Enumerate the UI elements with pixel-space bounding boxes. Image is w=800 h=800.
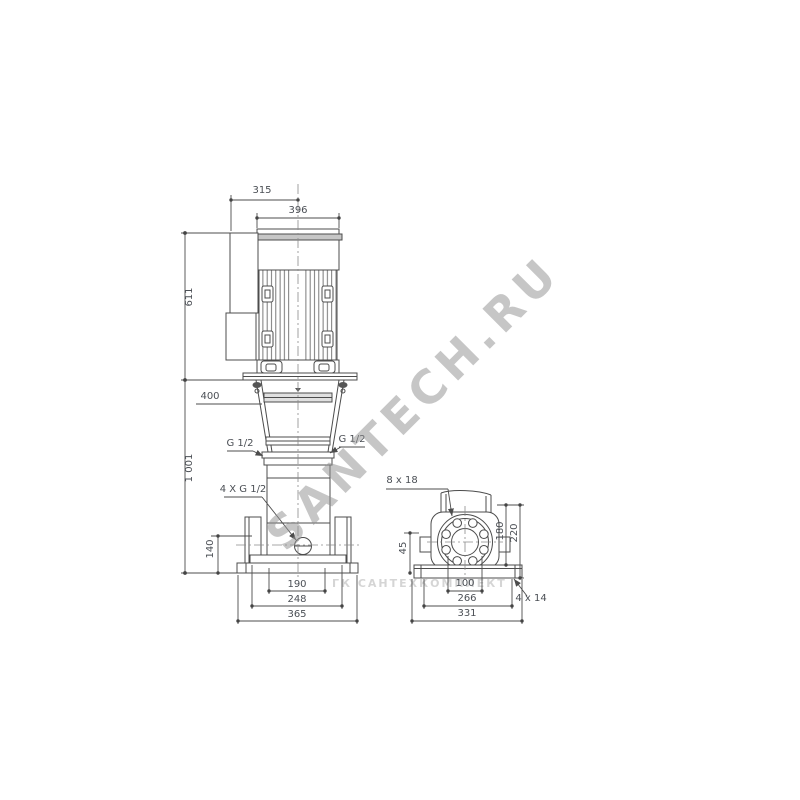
dim-base-holes: 4 x 14 bbox=[515, 594, 546, 604]
dim-base-inner-width: 190 bbox=[287, 580, 306, 590]
motor-flange bbox=[243, 373, 357, 380]
port-label-right: G 1/2 bbox=[338, 435, 365, 445]
dim-flange-top-height: 220 bbox=[510, 523, 520, 542]
side-base-plate bbox=[414, 565, 522, 578]
dim-hole-span: 100 bbox=[455, 579, 474, 589]
chamber-stack bbox=[267, 465, 330, 555]
pump-base bbox=[237, 555, 358, 573]
coupling-lantern bbox=[253, 380, 348, 452]
dim-motor-width: 396 bbox=[288, 206, 307, 216]
dim-base-width: 365 bbox=[287, 610, 306, 620]
port-label-left: G 1/2 bbox=[226, 439, 253, 449]
dim-base-mid-width: 248 bbox=[287, 595, 306, 605]
side-port-left bbox=[420, 537, 431, 552]
dim-removal-clearance: 400 bbox=[200, 392, 219, 402]
pump-dimensional-drawing: ГК САНТЕХКОМПЛЕКТ bbox=[0, 0, 800, 800]
dim-flange-holes: 8 x 18 bbox=[386, 476, 417, 486]
dim-motor-height: 611 bbox=[185, 287, 195, 306]
terminal-box bbox=[226, 233, 258, 360]
dim-base-edge-height: 45 bbox=[399, 542, 409, 555]
dim-terminal-box-offset: 315 bbox=[252, 186, 271, 196]
dim-port-center-height: 140 bbox=[206, 539, 216, 558]
dim-side-base-mid-width: 266 bbox=[457, 594, 476, 604]
dim-side-base-width: 331 bbox=[457, 609, 476, 619]
dim-flange-height: 180 bbox=[496, 521, 506, 540]
drawing-canvas bbox=[0, 0, 800, 800]
dim-total-height: 1 001 bbox=[185, 454, 195, 483]
port-label-4x: 4 X G 1/2 bbox=[220, 485, 267, 495]
